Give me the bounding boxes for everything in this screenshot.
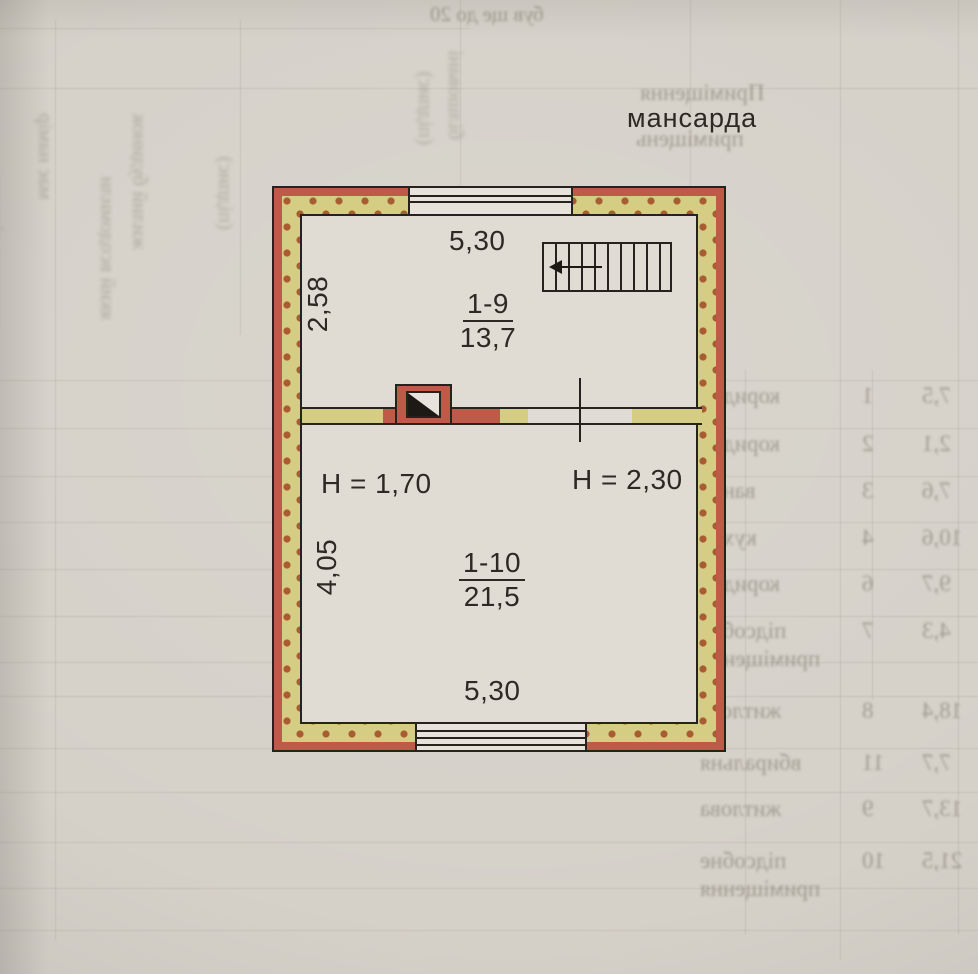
- bleed-through-text: 13,7: [922, 796, 962, 822]
- bleed-through-text: вбиральня: [700, 750, 801, 776]
- dim-width-bottom: 5,30: [464, 675, 521, 707]
- bleed-through-text: 10: [862, 848, 885, 874]
- bleed-through-text: 6: [862, 571, 874, 597]
- staircase-symbol: [542, 242, 672, 292]
- bleed-through-text: 4,3: [922, 618, 951, 644]
- flue-symbol-icon: [406, 391, 441, 418]
- bleed-through-text: 9,7: [922, 571, 951, 597]
- bleed-through-text: 4: [862, 525, 874, 551]
- height-zone-mark: [579, 378, 581, 442]
- window-symbol-top: [408, 188, 573, 216]
- bleed-through-text: 3: [862, 478, 874, 504]
- dim-depth-bottom: 4,05: [311, 539, 343, 596]
- bleed-grid-line: [840, 0, 841, 960]
- bleed-grid-line: [0, 930, 978, 931]
- bleed-through-text: 10,6: [922, 525, 962, 551]
- bleed-through-text: 7: [862, 618, 874, 644]
- bleed-through-text: 7,6: [922, 478, 951, 504]
- bleed-through-text: (підпис): [213, 156, 238, 230]
- bleed-grid-line: [0, 792, 978, 793]
- bleed-through-text: 18,4: [922, 698, 962, 724]
- floor-title: мансарда: [627, 103, 757, 134]
- bleed-through-text: 21,5: [922, 848, 962, 874]
- bleed-through-text: який всодомили: [95, 176, 120, 320]
- bleed-through-text: 8: [862, 698, 874, 724]
- bleed-through-text: 1: [862, 383, 874, 409]
- ceiling-height-left: H = 1,70: [321, 468, 432, 500]
- bleed-grid-line: [0, 28, 470, 29]
- partition-segment: [500, 409, 528, 423]
- partition-segment: [302, 409, 383, 423]
- bleed-through-text: (підпис): [413, 71, 438, 145]
- bleed-through-text: білшовані: [443, 50, 468, 140]
- bleed-grid-line: [240, 20, 241, 335]
- bleed-through-text: житлова: [700, 796, 781, 822]
- room-number: 1-9: [463, 289, 513, 322]
- room-area: 13,7: [448, 322, 528, 352]
- bleed-through-text: 2,1: [922, 431, 951, 457]
- bleed-grid-line: [0, 88, 978, 89]
- bleed-through-text: жилий будинок: [127, 113, 152, 250]
- bleed-through-text: був ще до 20: [430, 2, 544, 27]
- ceiling-height-right: H = 2,30: [572, 464, 683, 496]
- bleed-grid-line: [0, 888, 978, 889]
- partition-segment: [632, 409, 702, 423]
- bleed-through-text: підсобне: [700, 848, 786, 874]
- chimney-block: [395, 384, 452, 425]
- dim-depth-top: 2,58: [302, 276, 334, 333]
- partition-wall: [302, 407, 702, 425]
- bleed-through-text: має намір: [33, 113, 58, 200]
- window-symbol-bottom: [415, 722, 587, 750]
- dim-width-top: 5,30: [449, 225, 506, 257]
- bleed-through-text: приміщення: [700, 876, 820, 902]
- bleed-through-text: висновки вільних: [0, 172, 8, 330]
- bleed-grid-line: [0, 842, 978, 843]
- room-area: 21,5: [452, 581, 532, 611]
- bleed-through-text: 9: [862, 796, 874, 822]
- bleed-through-text: 7,5: [922, 383, 951, 409]
- bleed-through-text: 7,7: [922, 750, 951, 776]
- room-label-1-10: 1-10 21,5: [452, 548, 532, 612]
- bleed-through-text: 11: [862, 750, 884, 776]
- bleed-grid-line: [958, 0, 959, 935]
- stair-direction-arrow-icon: [562, 266, 602, 268]
- bleed-through-text: 2: [862, 431, 874, 457]
- room-number: 1-10: [459, 548, 525, 581]
- room-label-1-9: 1-9 13,7: [448, 289, 528, 353]
- scanned-floor-plan-page: Приміщенняприміщенькоридор17,5коридор22,…: [0, 0, 978, 974]
